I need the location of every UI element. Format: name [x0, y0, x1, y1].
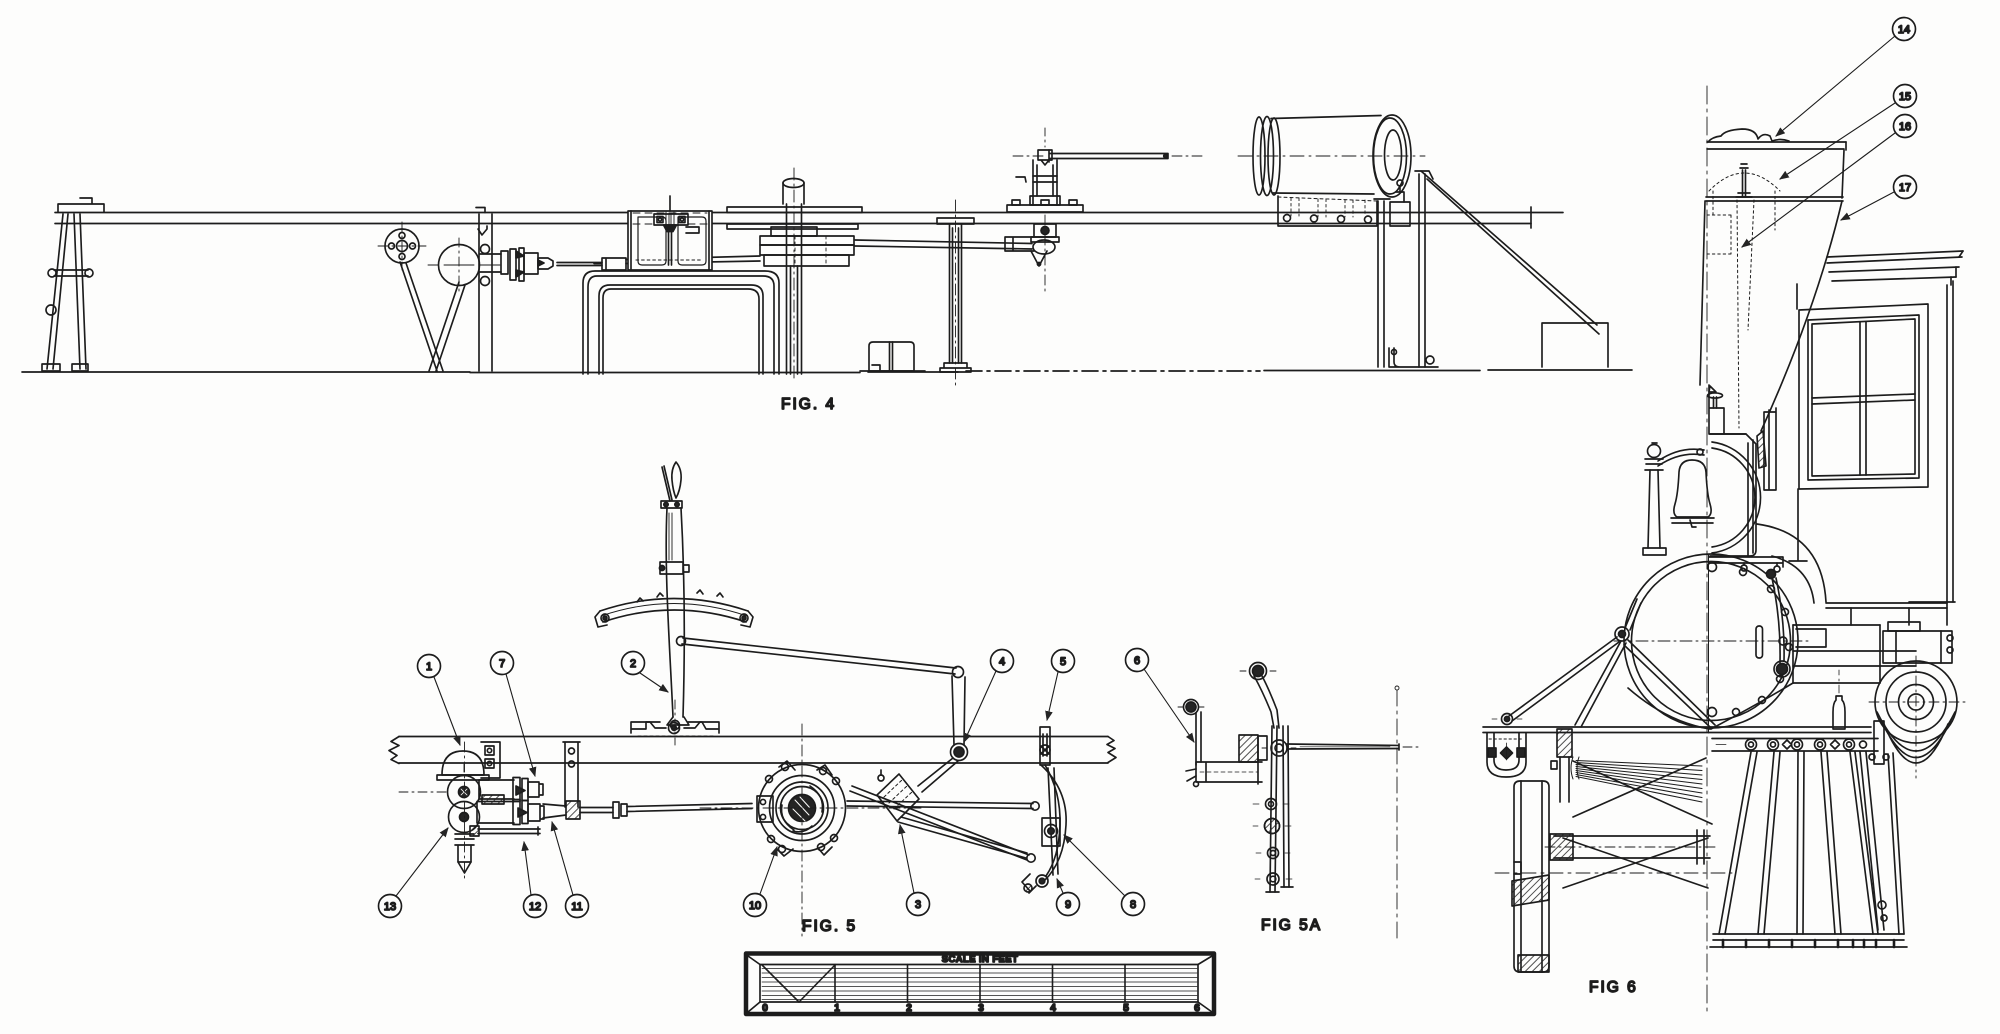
svg-text:16: 16 [1899, 121, 1911, 133]
svg-text:12: 12 [529, 901, 541, 913]
svg-text:13: 13 [384, 901, 396, 913]
svg-text:0: 0 [762, 1003, 768, 1014]
svg-text:7: 7 [499, 658, 505, 670]
svg-text:FIG. 5: FIG. 5 [802, 918, 857, 935]
svg-text:5: 5 [1060, 656, 1066, 668]
svg-text:FIG. 4: FIG. 4 [781, 396, 836, 413]
svg-text:11: 11 [571, 901, 582, 913]
svg-text:3: 3 [978, 1003, 984, 1014]
svg-text:6: 6 [1134, 655, 1140, 667]
svg-text:6: 6 [1194, 1003, 1200, 1014]
svg-text:4: 4 [1050, 1003, 1056, 1014]
svg-text:3: 3 [915, 899, 921, 911]
svg-text:14: 14 [1898, 24, 1910, 36]
svg-text:5: 5 [1123, 1003, 1129, 1014]
svg-text:9: 9 [1065, 899, 1071, 911]
svg-text:SCALE IN FEET: SCALE IN FEET [942, 954, 1018, 965]
svg-text:10: 10 [749, 900, 761, 912]
svg-text:1: 1 [834, 1003, 840, 1014]
svg-text:FIG 6: FIG 6 [1589, 979, 1638, 996]
svg-text:17: 17 [1899, 182, 1911, 194]
svg-text:FIG 5A: FIG 5A [1261, 917, 1322, 934]
svg-text:1: 1 [426, 661, 432, 673]
svg-text:4: 4 [999, 656, 1005, 668]
svg-text:2: 2 [906, 1003, 912, 1014]
svg-text:15: 15 [1899, 91, 1911, 103]
svg-text:8: 8 [1130, 899, 1136, 911]
svg-text:2: 2 [630, 658, 636, 670]
